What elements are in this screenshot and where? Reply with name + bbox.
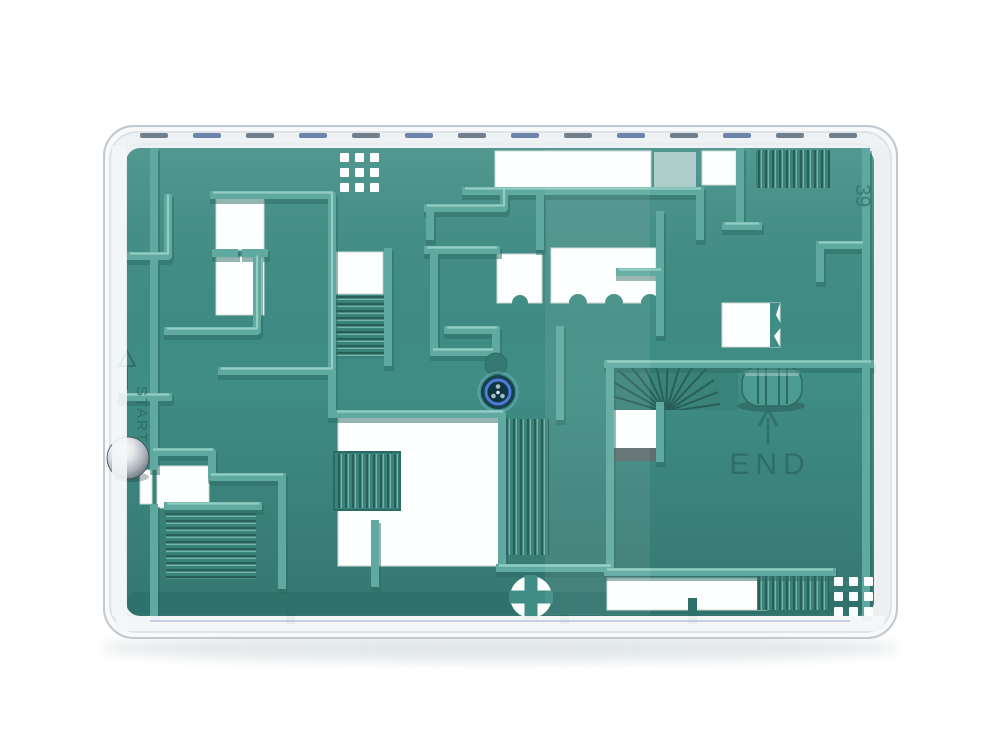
end-label: END — [729, 448, 810, 481]
photo-stage: START END 39 — [0, 0, 1000, 750]
start-label: START — [133, 386, 150, 444]
hole — [157, 466, 209, 508]
stairs-mid-left — [334, 295, 384, 359]
mold-number: 39 — [851, 184, 874, 207]
dot-grid-bottom — [834, 577, 873, 616]
stairs-center-right — [503, 419, 549, 555]
hole — [216, 197, 264, 250]
stairs-bottom-right — [757, 576, 829, 610]
stairs-top-right — [756, 150, 830, 188]
dot-grid-top — [340, 153, 379, 192]
hole — [333, 252, 383, 294]
maze-photo: START END 39 — [0, 0, 1000, 750]
hole-top-right-gap — [702, 151, 736, 185]
cover-reflection-streak — [545, 149, 650, 615]
stairs-bottom-left — [166, 509, 256, 579]
reflection-gap — [654, 152, 696, 188]
stairs-tongue-center — [334, 452, 400, 510]
